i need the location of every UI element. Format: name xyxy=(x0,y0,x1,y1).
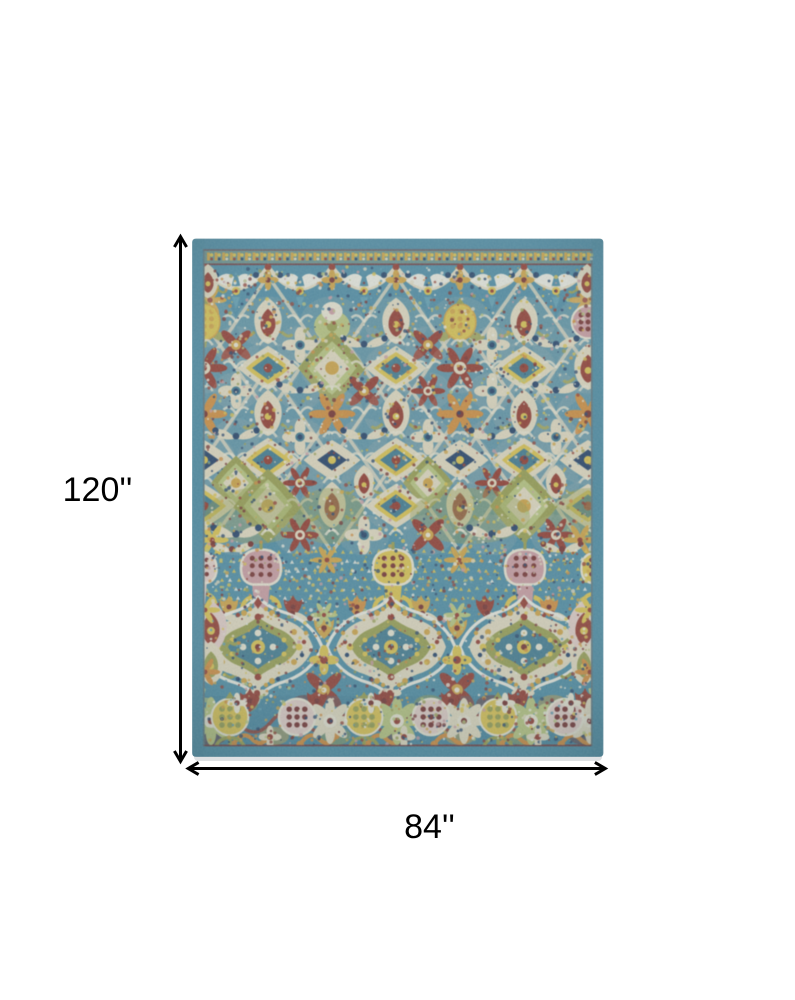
svg-text:120'': 120'' xyxy=(63,471,133,509)
svg-text:84'': 84'' xyxy=(404,808,455,846)
